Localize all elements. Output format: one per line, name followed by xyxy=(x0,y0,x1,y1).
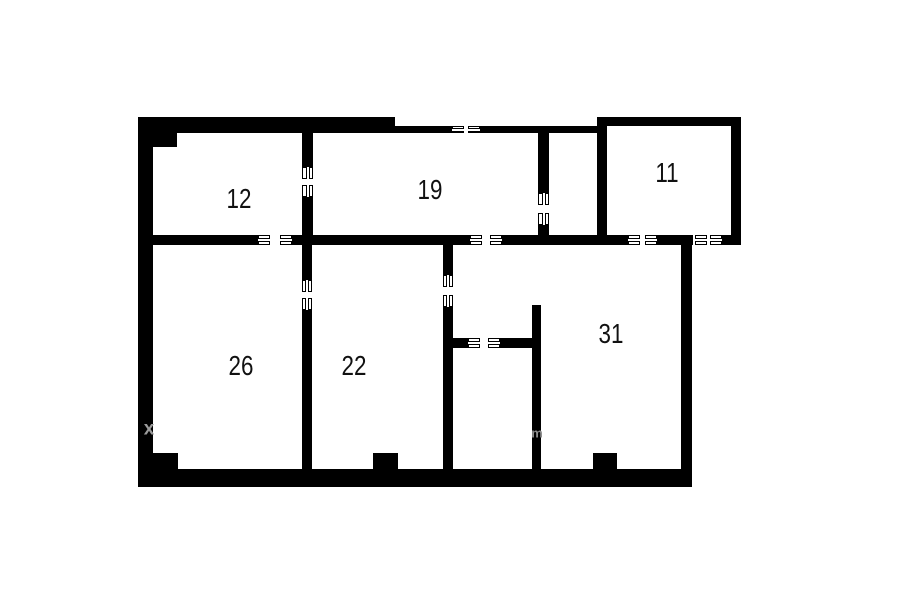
room-label-26: 26 xyxy=(229,350,254,382)
watermark-layer: xm xyxy=(0,0,900,604)
room-label-12: 12 xyxy=(227,183,252,215)
room-label-22: 22 xyxy=(342,350,367,382)
watermark-letter: x xyxy=(144,420,155,439)
watermark-letter: m xyxy=(531,427,543,440)
room-label-11: 11 xyxy=(655,157,678,189)
room-label-19: 19 xyxy=(418,174,443,206)
floor-plan: 121911262231 xm xyxy=(0,0,900,604)
room-label-31: 31 xyxy=(599,318,624,350)
floor-plan-image: 121911262231 xm xyxy=(0,0,900,604)
